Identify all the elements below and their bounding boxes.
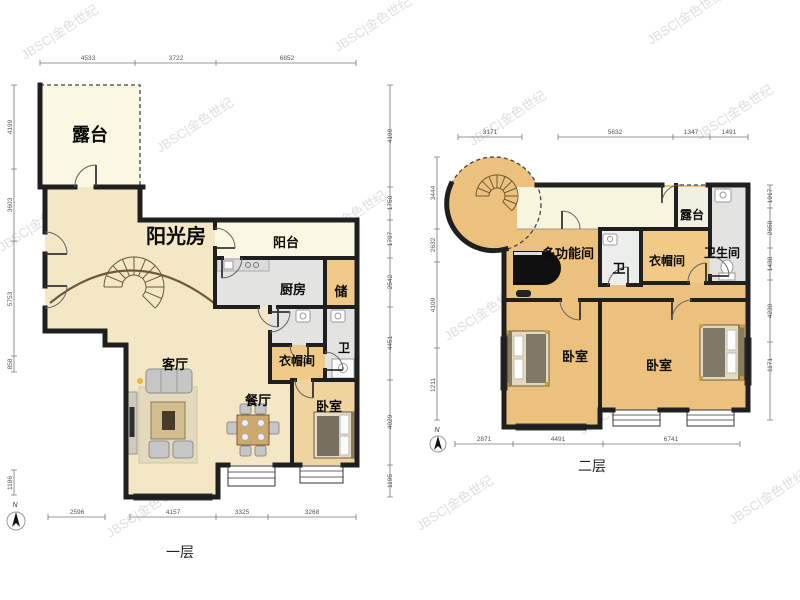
dim-label: 1438 [767, 256, 774, 271]
room-label-bedroom-left-f2: 卧室 [562, 349, 588, 364]
sun-strip-f2 [517, 187, 676, 229]
compass-n-label: N [434, 427, 440, 434]
sofa [146, 369, 192, 393]
dim-label: 5753 [7, 291, 14, 306]
dim-label: 1750 [387, 195, 394, 210]
bay-window [300, 466, 343, 483]
watermark: JBSC|金色世纪 [466, 88, 548, 149]
dim-label: 1917 [767, 188, 774, 203]
bed-f2-left [505, 330, 549, 386]
dining-table [237, 415, 269, 445]
watermark: JBSC|金色世纪 [331, 0, 413, 55]
dim-label: 3722 [169, 55, 184, 62]
kitchen-counter [217, 259, 269, 271]
dim-label: 1171 [767, 358, 774, 372]
dim-label: 4533 [81, 55, 96, 62]
watermark: JBSC|金色世纪 [644, 0, 726, 48]
dim-label: 4451 [387, 335, 394, 350]
armchair [173, 441, 193, 458]
floorplan-canvas: JBSC|金色世纪 JBSC|金色世纪 JBSC|金色世纪 JBSC|金色世纪 … [0, 0, 800, 600]
dim-label: 5632 [608, 129, 623, 136]
dim-label: 3444 [430, 185, 437, 200]
bay-window [687, 410, 734, 426]
dim-label: 858 [7, 358, 14, 369]
room-label-dining-f1: 餐厅 [244, 393, 271, 408]
room-label-bedroom-right-f2: 卧室 [646, 358, 672, 373]
room-label-bath-f1: 卫 [338, 341, 350, 355]
room-label-bath-small-f2: 卫 [612, 261, 625, 276]
floor1-name: 一层 [166, 544, 194, 560]
dim-label: 1347 [684, 129, 699, 136]
floor1-plan: 露台 阳光房 阳台 厨房 储 客厅 餐厅 卧室 衣帽间 卫 4533 3722 … [7, 55, 394, 560]
dim-label: 4199 [7, 119, 14, 134]
compass-f2: N [430, 427, 446, 452]
compass-n-label: N [12, 502, 18, 509]
dim-label: 1211 [430, 378, 437, 392]
room-label-bathroom-f2: 卫生间 [704, 245, 740, 260]
room-label-living-f1: 客厅 [162, 357, 188, 372]
dim-label: 6741 [664, 436, 679, 443]
room-label-sunroom-f1: 阳光房 [146, 224, 206, 248]
watermark: JBSC|金色世纪 [413, 473, 495, 534]
dim-label: 3603 [7, 197, 14, 212]
dim-label: 2871 [477, 436, 492, 443]
floor2-plan: 露台 多功能间 卫 衣帽间 卫生间 卧室 卧室 3171 5632 1347 1… [430, 129, 774, 474]
watermark: JBSC|金色世纪 [153, 95, 235, 156]
dim-label: 4029 [387, 414, 394, 429]
room-label-multifunction-f2: 多功能间 [542, 246, 594, 261]
floor2-name: 二层 [578, 458, 606, 474]
bay-window [228, 466, 275, 486]
bed-f1 [314, 412, 357, 458]
armchair [149, 441, 169, 458]
tv [130, 407, 135, 437]
watermark: JBSC|金色世纪 [726, 467, 800, 528]
bay-window [613, 410, 660, 426]
room-label-balcony-f1: 阳台 [273, 235, 299, 250]
dim-label: 2542 [387, 274, 394, 289]
dim-label: 4239 [767, 303, 774, 318]
dim-label: 3171 [483, 129, 498, 136]
dim-label: 2632 [430, 237, 437, 252]
dim-label: 3325 [235, 509, 250, 516]
room-label-terrace-f1: 露台 [72, 124, 108, 145]
dim-label: 4109 [430, 297, 437, 312]
room-label-cloakroom-f2: 衣帽间 [649, 253, 685, 268]
room-storage-f1 [325, 258, 357, 307]
dim-label: 3268 [305, 509, 320, 516]
room-label-kitchen-f1: 厨房 [280, 282, 306, 297]
floorplan-image: JBSC|金色世纪 JBSC|金色世纪 JBSC|金色世纪 JBSC|金色世纪 … [0, 0, 800, 600]
bed-f2-right [699, 324, 744, 380]
room-label-bedroom-f1: 卧室 [316, 399, 342, 414]
dim-label: 6852 [280, 55, 295, 62]
dim-label: 1797 [387, 231, 394, 246]
watermark: JBSC|金色世纪 [18, 2, 100, 63]
dim-label: 4491 [551, 436, 566, 443]
dim-label: 1195 [387, 474, 394, 488]
dim-label: 1491 [722, 129, 737, 136]
room-label-cloakroom-f1: 衣帽间 [279, 353, 315, 368]
dim-label: 4157 [166, 509, 181, 516]
room-label-storage-f1: 储 [333, 284, 347, 299]
dim-label: 2596 [70, 509, 85, 516]
compass-f1: N [7, 502, 25, 530]
dim-label: 1186 [7, 476, 14, 490]
coffee-table-tray [162, 411, 175, 430]
dim-label: 4199 [387, 128, 394, 143]
room-label-terrace-f2: 露台 [680, 207, 704, 222]
dim-label: 2658 [767, 220, 774, 235]
lamp [137, 378, 143, 384]
